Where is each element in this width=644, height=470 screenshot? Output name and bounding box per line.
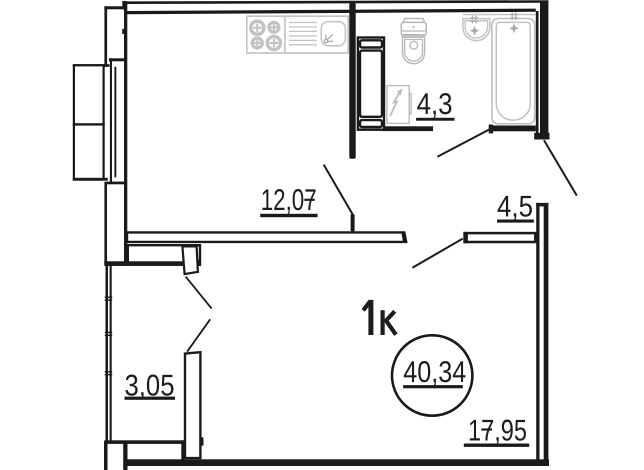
svg-text:17,95: 17,95 xyxy=(468,414,527,447)
svg-text:12,07: 12,07 xyxy=(261,184,317,217)
svg-text:4,5: 4,5 xyxy=(497,190,533,223)
svg-text:4,3: 4,3 xyxy=(417,88,453,121)
svg-text:40,34: 40,34 xyxy=(403,356,466,389)
